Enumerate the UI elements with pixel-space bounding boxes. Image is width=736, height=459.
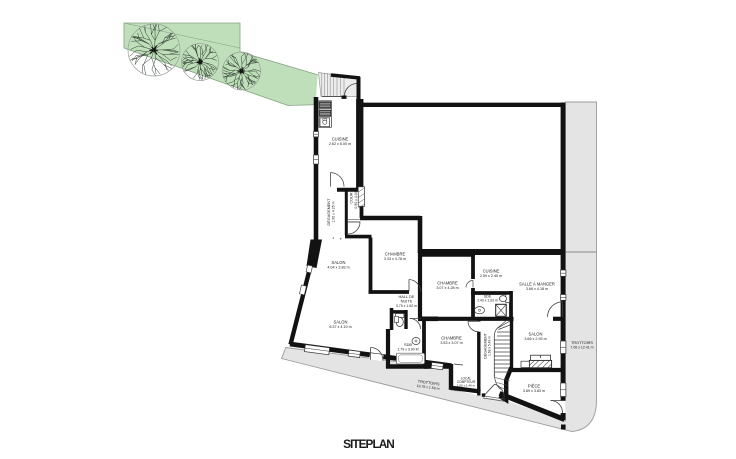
svg-text:NUITE: NUITE [401, 299, 413, 304]
svg-text:CHAMBRE: CHAMBRE [441, 336, 462, 341]
svg-text:CHAMBRE: CHAMBRE [437, 281, 458, 286]
svg-text:CUISINE: CUISINE [332, 137, 349, 142]
svg-text:1.96 x 4.25 m: 1.96 x 4.25 m [332, 201, 336, 222]
svg-text:2.43 x 1.63 m: 2.43 x 1.63 m [477, 299, 498, 303]
svg-text:CUISINE: CUISINE [483, 269, 500, 274]
svg-text:3.53 x 3.07 m: 3.53 x 3.07 m [440, 341, 462, 345]
svg-text:SALON: SALON [334, 320, 348, 325]
svg-text:CHAMBRE: CHAMBRE [385, 252, 406, 257]
svg-text:1.06 x 1.46 m: 1.06 x 1.46 m [457, 384, 476, 388]
svg-text:SALON: SALON [529, 332, 543, 337]
svg-text:SITEPLAN: SITEPLAN [343, 437, 394, 451]
svg-text:3.89 x 3.83 m: 3.89 x 3.83 m [523, 389, 545, 393]
svg-text:3.66 x 4.18 m: 3.66 x 4.18 m [526, 287, 548, 291]
svg-text:SALLE À MANGER: SALLE À MANGER [519, 282, 555, 287]
svg-text:PIÈCE: PIÈCE [528, 384, 541, 389]
svg-text:TROTTOIRS: TROTTOIRS [571, 341, 593, 345]
svg-text:1.79 x 3.00 M: 1.79 x 3.00 M [397, 348, 418, 352]
svg-text:2.62 x 6.00 m: 2.62 x 6.00 m [329, 142, 351, 146]
svg-text:2.59 x 2.40 m: 2.59 x 2.40 m [480, 274, 502, 278]
svg-text:3.07 x 4.28 m: 3.07 x 4.28 m [436, 286, 458, 290]
svg-text:7.06 x 12.41 m: 7.06 x 12.41 m [570, 345, 593, 349]
svg-text:4.04 x 3.83 m: 4.04 x 3.83 m [327, 266, 349, 270]
svg-text:3.66 x 2.93 m: 3.66 x 2.93 m [524, 337, 546, 341]
svg-text:3.79 x 1.62 m: 3.79 x 1.62 m [396, 304, 417, 308]
svg-text:0.90 x 4.04 m: 0.90 x 4.04 m [354, 187, 358, 208]
svg-text:COUR: COUR [350, 192, 354, 203]
svg-text:3.33 x 4.78 m: 3.33 x 4.78 m [384, 257, 406, 261]
svg-text:6.37 x 4.19 m: 6.37 x 4.19 m [329, 325, 351, 329]
svg-text:DÉGAGEMENT: DÉGAGEMENT [326, 198, 331, 226]
svg-text:1.68 x 5.49 m: 1.68 x 5.49 m [488, 336, 492, 356]
svg-text:SDB: SDB [404, 342, 412, 347]
svg-text:SALON: SALON [332, 260, 346, 265]
